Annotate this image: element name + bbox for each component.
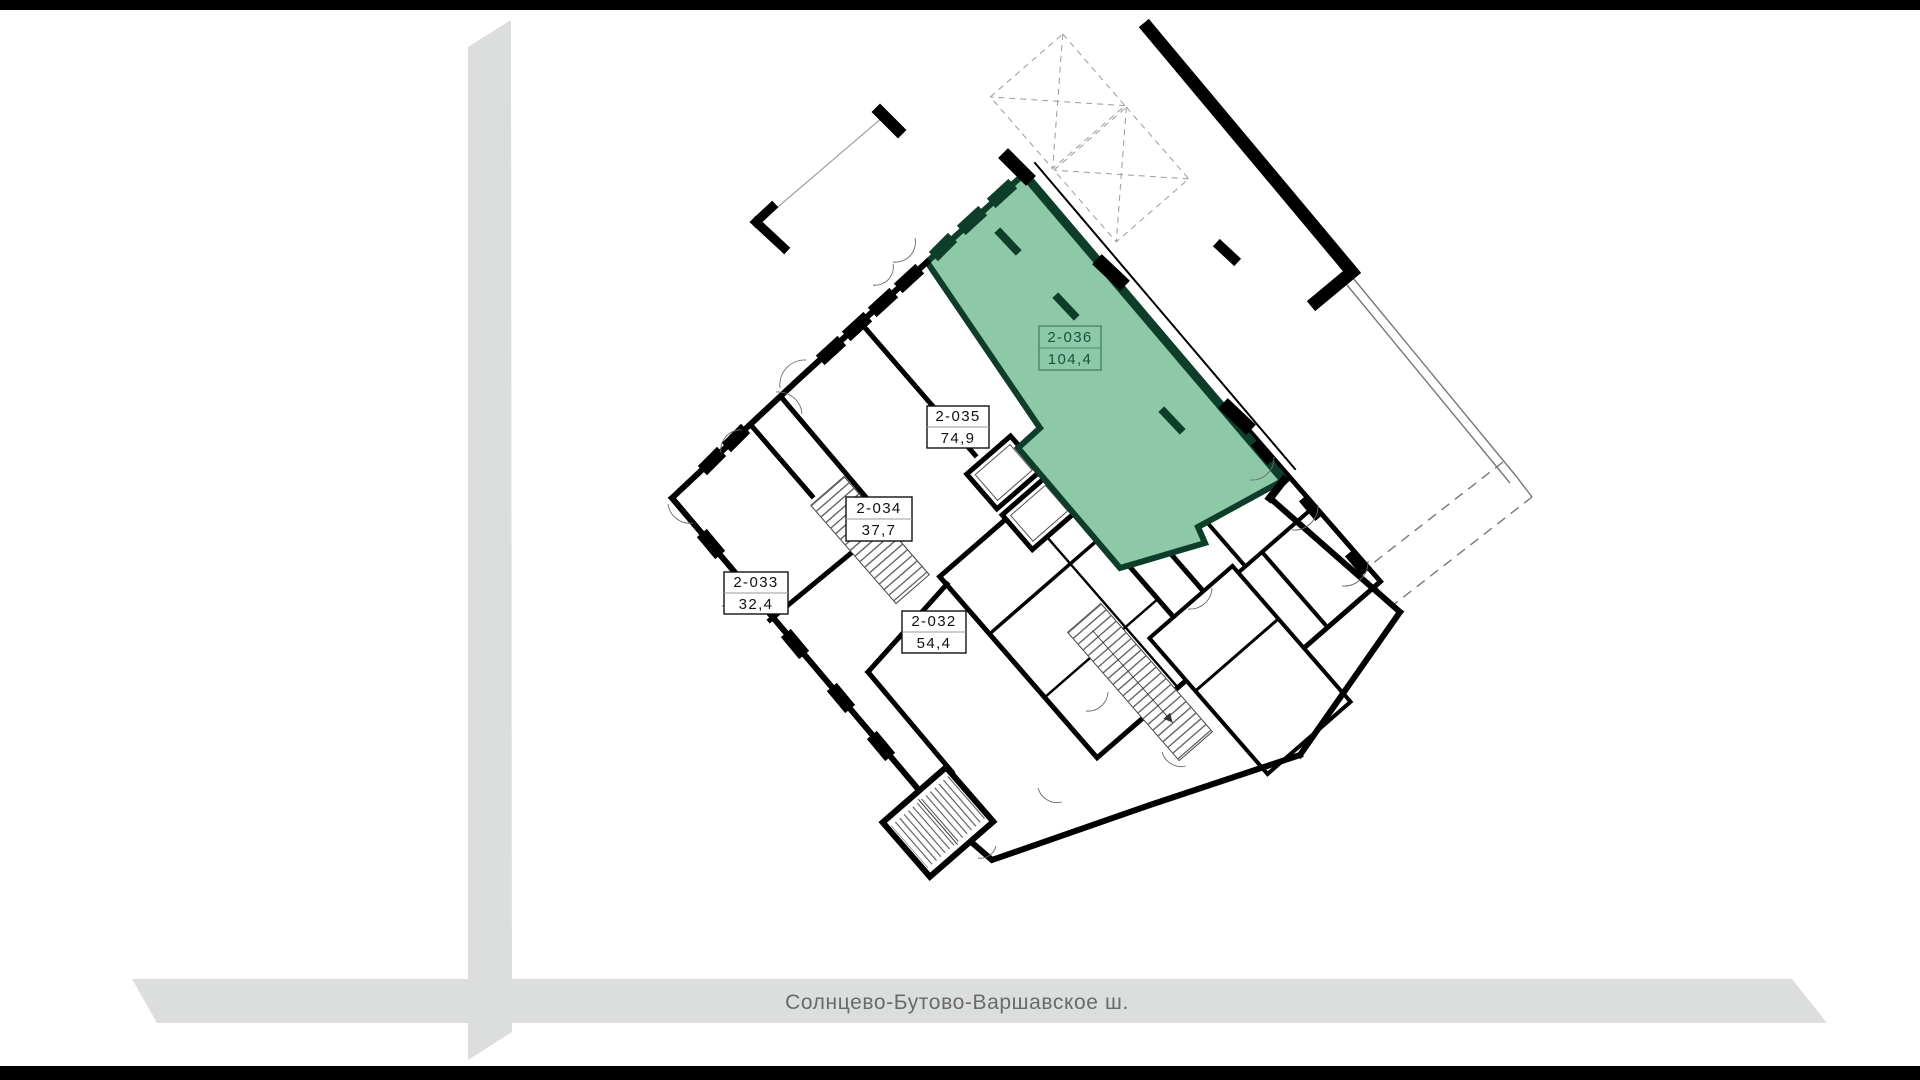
unit-label-2-032[interactable]: 2-032 54,4	[902, 611, 966, 653]
unit-label-2-035[interactable]: 2-035 74,9	[927, 406, 989, 448]
unit-area: 37,7	[862, 522, 897, 539]
bottom-frame-bar	[0, 1066, 1920, 1080]
road-vertical	[468, 20, 512, 1060]
page-background	[0, 0, 1920, 1080]
unit-area: 54,4	[917, 635, 952, 652]
unit-id: 2-032	[911, 613, 956, 630]
unit-id: 2-033	[733, 574, 778, 591]
floorplan-canvas: 2-036 104,4 2-035 74,9 2-034 37,7 2-033 …	[0, 0, 1920, 1080]
top-frame-bar	[0, 0, 1920, 10]
street-name-label: Солнцево-Бутово-Варшавское ш.	[785, 991, 1129, 1014]
unit-label-2-033[interactable]: 2-033 32,4	[724, 572, 788, 614]
unit-id: 2-036	[1047, 329, 1092, 346]
unit-id: 2-034	[856, 500, 901, 517]
unit-label-2-036[interactable]: 2-036 104,4	[1039, 326, 1101, 370]
floorplan-page: 2-036 104,4 2-035 74,9 2-034 37,7 2-033 …	[0, 0, 1920, 1080]
unit-area: 74,9	[941, 430, 976, 447]
unit-label-2-034[interactable]: 2-034 37,7	[846, 497, 912, 541]
unit-id: 2-035	[935, 408, 980, 425]
unit-area: 32,4	[739, 596, 774, 613]
unit-area: 104,4	[1048, 351, 1093, 368]
